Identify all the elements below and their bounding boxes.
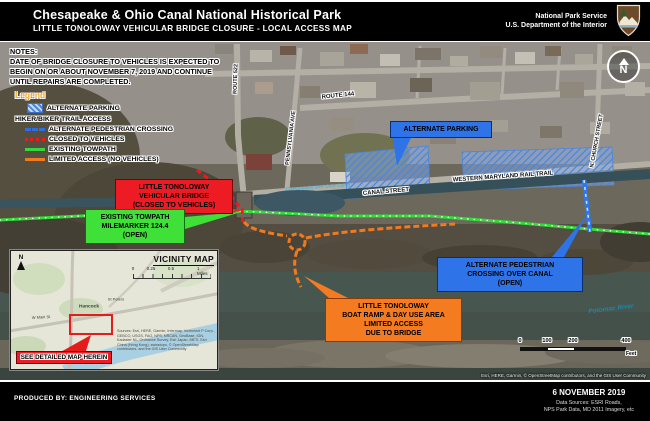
vicinity-map-inset: N VICINITY MAP 0 0.25 0.5 1 Miles Hancoc… — [10, 250, 218, 370]
callout-boat-ramp: LITTLE TONOLOWAY BOAT RAMP & DAY USE ARE… — [325, 298, 462, 342]
legend-item-existing-towpath: EXISTING TOWPATH — [15, 146, 205, 153]
legend-item-alternate-parking: ALTERNATE PARKING — [15, 103, 205, 113]
main-map: NOTES: DATE OF BRIDGE CLOSURE TO VEHICLE… — [0, 42, 650, 380]
legend-heading-trail-access: HIKER/BIKER TRAIL ACCESS — [15, 116, 205, 123]
vicinity-street-label: W Main St — [32, 314, 51, 320]
blue-hatch-swatch — [27, 103, 43, 113]
title-bar: Chesapeake & Ohio Canal National Histori… — [0, 2, 650, 42]
vicinity-north-icon — [17, 261, 25, 270]
callout-alternate-parking: ALTERNATE PARKING — [390, 121, 492, 138]
scale-bar: 0 100 200 400 Feet — [514, 338, 644, 360]
vicinity-title: VICINITY MAP — [153, 254, 214, 266]
notes-block: NOTES: DATE OF BRIDGE CLOSURE TO VEHICLE… — [10, 47, 255, 87]
red-dotted-swatch — [25, 138, 45, 141]
street-label-route522: ROUTE 522 — [232, 64, 239, 94]
agency-line-2: U.S. Department of the Interior — [505, 21, 607, 30]
legend-title: Legend — [15, 90, 205, 100]
scale-bar-rule — [520, 347, 626, 351]
agency-block: National Park Service U.S. Department of… — [505, 12, 607, 30]
legend-item-closed-to-vehicles: CLOSED TO VEHICLES — [15, 136, 205, 143]
callout-see-detailed-map: SEE DETAILED MAP HEREIN — [16, 351, 112, 364]
footer-bar: PRODUCED BY: ENGINEERING SERVICES 6 NOVE… — [0, 380, 650, 421]
park-title: Chesapeake & Ohio Canal National Histori… — [33, 8, 352, 22]
green-line-swatch — [25, 148, 45, 151]
map-document: Chesapeake & Ohio Canal National Histori… — [0, 0, 650, 421]
map-subtitle: LITTLE TONOLOWAY VEHICULAR BRIDGE CLOSUR… — [33, 24, 352, 33]
footer-right-block: 6 NOVEMBER 2019 Data Sources: ESRI Roads… — [544, 388, 634, 413]
callout-pedestrian-crossing: ALTERNATE PEDESTRIAN CROSSING OVER CANAL… — [437, 257, 583, 292]
vicinity-attribution: Sources: Esri, HERE, Garmin, Intermap, i… — [117, 329, 216, 352]
data-sources: Data Sources: ESRI Roads, NPS Park Data,… — [544, 400, 634, 413]
nps-arrowhead-logo — [615, 4, 642, 37]
produced-by-label: PRODUCED BY: ENGINEERING SERVICES — [14, 395, 156, 402]
vicinity-north-arrow: N — [17, 255, 25, 270]
vicinity-scale-ruler — [133, 274, 211, 279]
callout-existing-towpath: EXISTING TOWPATH MILEMARKER 124.4 (OPEN) — [85, 209, 185, 244]
north-arrow: N — [607, 50, 640, 83]
legend-item-pedestrian-crossing: ALTERNATE PEDESTRIAN CROSSING — [15, 126, 205, 133]
vicinity-poi-label: St Peters — [108, 297, 124, 302]
map-attribution: Esri, HERE, Garmin, © OpenStreetMap cont… — [481, 373, 646, 378]
map-date: 6 NOVEMBER 2019 — [544, 388, 634, 397]
vicinity-scale: 0 0.25 0.5 1 Miles — [131, 266, 215, 280]
vicinity-town-label: Hancock — [79, 305, 99, 310]
legend: Legend ALTERNATE PARKING HIKER/BIKER TRA… — [15, 90, 205, 166]
blue-dashed-swatch — [25, 128, 45, 131]
agency-line-1: National Park Service — [505, 12, 607, 21]
legend-item-limited-access: LIMITED ACCESS (NO VEHICLES) — [15, 156, 205, 163]
detail-extent-rectangle — [69, 314, 113, 335]
orange-line-swatch — [25, 158, 45, 161]
